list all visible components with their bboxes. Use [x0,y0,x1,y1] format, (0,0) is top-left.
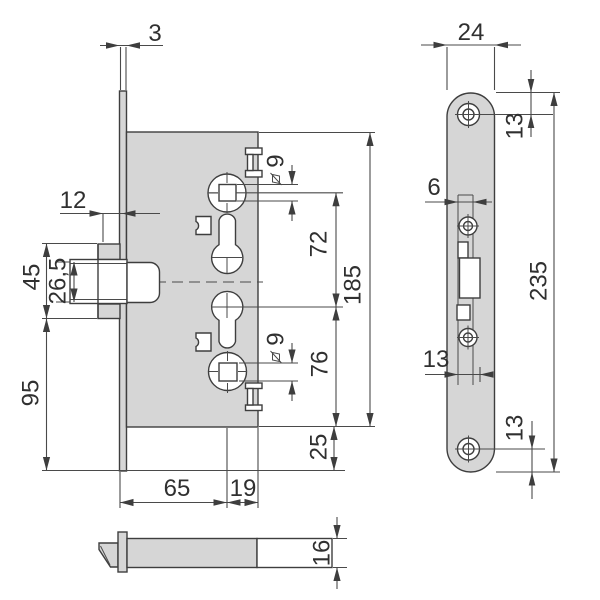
dim-label: 26,5 [45,258,72,305]
follower-square-top [219,185,236,202]
latch-window [460,258,481,298]
dim-label: 12 [60,187,87,214]
technical-drawing-lock: 3 12 45 26,5 95 [0,0,600,600]
spring-clip-bottom [196,333,211,351]
dim-label: 3 [148,20,161,47]
square-symbol-icon [271,173,282,185]
dim-label: 72 [306,231,333,258]
drawing-canvas: 3 12 45 26,5 95 [0,0,600,600]
spring-clip-top [196,217,211,235]
dim-latch-bolt-height: 26,5 [45,258,75,305]
deadbolt-window [457,305,470,320]
dim-faceplate-thickness: 3 [100,20,163,90]
dim-label: 13 [423,346,450,373]
dim-label: 45 [19,264,46,291]
dim-plate-width: 24 [421,19,521,90]
square-symbol-icon [271,351,282,363]
faceplate-view [447,93,495,472]
dim-label: 25 [306,434,333,461]
faceplate-section [118,532,127,572]
dim-case-thickness: 16 [309,517,348,589]
follower-square-bottom [219,363,237,381]
latch-bevel [99,543,118,567]
dim-label: 13 [502,415,529,442]
dim-label: 9 [263,154,290,167]
dim-label: 19 [230,475,257,502]
dim-label: 13 [502,113,529,140]
cutout-step [458,242,468,258]
dim-label: 95 [18,380,45,407]
dim-cylinder-to-case-bottom: 76 [307,307,337,427]
dim-label: 9 [263,332,290,345]
dim-label: 185 [340,265,367,305]
dim-label: 24 [458,19,485,46]
front-view [70,91,263,471]
dim-label: 76 [307,351,334,378]
dim-label: 235 [526,261,553,301]
dim-label: 6 [427,174,440,201]
dim-backset: 65 19 [120,428,258,508]
dim-case-to-plate-end: 25 [306,427,335,471]
dim-label: 65 [164,475,191,502]
dim-case-height: 185 [259,133,375,427]
dim-label: 16 [309,540,336,567]
latch-head [127,263,160,303]
bottom-view [99,532,332,572]
case-section [127,539,257,568]
